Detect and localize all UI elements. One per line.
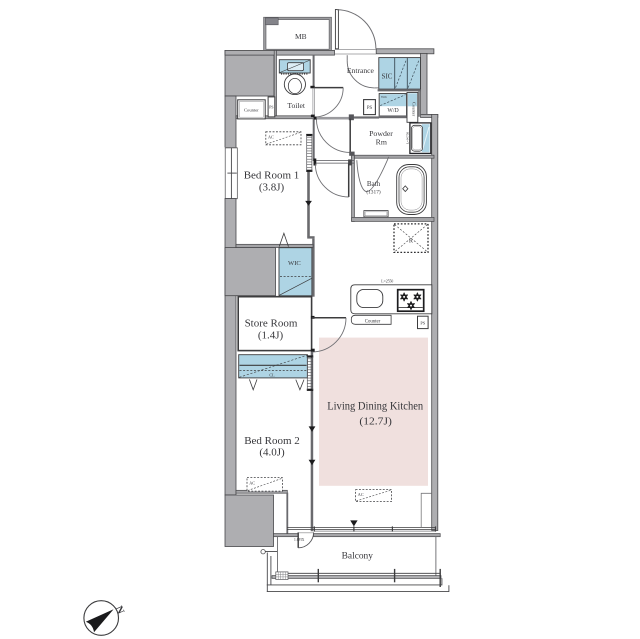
svg-text:Bed Room 1: Bed Room 1 bbox=[244, 169, 300, 181]
svg-text:AC: AC bbox=[249, 481, 255, 486]
svg-text:L=2550: L=2550 bbox=[381, 280, 393, 284]
svg-text:PS: PS bbox=[367, 106, 373, 111]
svg-text:(12.7J): (12.7J) bbox=[359, 415, 392, 427]
svg-text:Entrance: Entrance bbox=[347, 66, 375, 75]
svg-text:CL: CL bbox=[269, 373, 275, 378]
svg-text:Balcony: Balcony bbox=[342, 552, 374, 562]
svg-text:(1317): (1317) bbox=[366, 189, 381, 196]
svg-text:Wtb: Wtb bbox=[381, 95, 387, 99]
svg-text:Living Dining Kitchen: Living Dining Kitchen bbox=[327, 398, 423, 412]
svg-text:(3.8J): (3.8J) bbox=[259, 181, 285, 193]
svg-text:1.6FIX: 1.6FIX bbox=[294, 538, 305, 542]
svg-text:MB: MB bbox=[295, 32, 307, 41]
svg-text:(1.4J): (1.4J) bbox=[258, 329, 284, 341]
svg-text:Bed Room 2: Bed Room 2 bbox=[244, 435, 300, 447]
svg-text:(4.0J): (4.0J) bbox=[259, 447, 285, 459]
svg-text:AC: AC bbox=[268, 135, 274, 140]
svg-text:PS: PS bbox=[420, 320, 425, 325]
svg-text:Counter: Counter bbox=[244, 107, 259, 112]
svg-text:Store Room: Store Room bbox=[245, 318, 298, 330]
svg-text:Counter: Counter bbox=[365, 320, 381, 325]
svg-text:Counter: Counter bbox=[412, 102, 417, 117]
svg-text:AC: AC bbox=[358, 492, 364, 497]
svg-text:SIC: SIC bbox=[382, 72, 393, 80]
svg-text:Bath: Bath bbox=[367, 180, 381, 188]
svg-text:Toilet: Toilet bbox=[287, 101, 305, 110]
svg-text:W/D: W/D bbox=[387, 108, 398, 114]
svg-text:L=W750: L=W750 bbox=[406, 132, 410, 145]
svg-text:Rm: Rm bbox=[376, 137, 387, 146]
svg-text:PS: PS bbox=[269, 105, 273, 109]
svg-text:WIC: WIC bbox=[288, 260, 301, 267]
